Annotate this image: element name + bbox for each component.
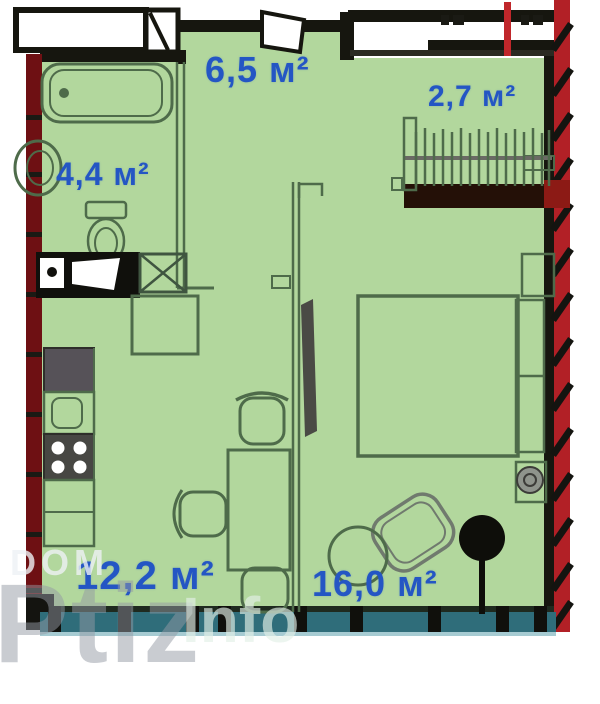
floor-plan: 6,5 м² 2,7 м² 4,4 м² 12,2 м² 16,0 м² DOM… [0, 0, 600, 704]
stove-icon [44, 434, 94, 480]
room-area-label-hall: 6,5 м² [205, 52, 310, 88]
room-area-label-kitchen-living: 12,2 м² [76, 556, 215, 596]
bathtub-drain [59, 88, 69, 98]
wall-top-bathroom [40, 50, 182, 62]
room-area-label-bedroom: 16,0 м² [312, 566, 438, 602]
entry-door [262, 12, 304, 52]
room-area-label-closet: 2,7 м² [428, 82, 516, 112]
wall-closet-bottom [404, 184, 556, 208]
column [459, 515, 505, 561]
room-area-label-bathroom: 4,4 м² [56, 158, 150, 190]
wall-corner [176, 50, 186, 64]
fridge-icon [44, 348, 94, 392]
wall-top-right-edge [350, 50, 556, 56]
lamp-icon [517, 467, 543, 493]
window-sill [40, 632, 556, 636]
red-axis-line [504, 2, 511, 56]
corridor-niche [16, 10, 146, 50]
column-stem [479, 558, 485, 614]
